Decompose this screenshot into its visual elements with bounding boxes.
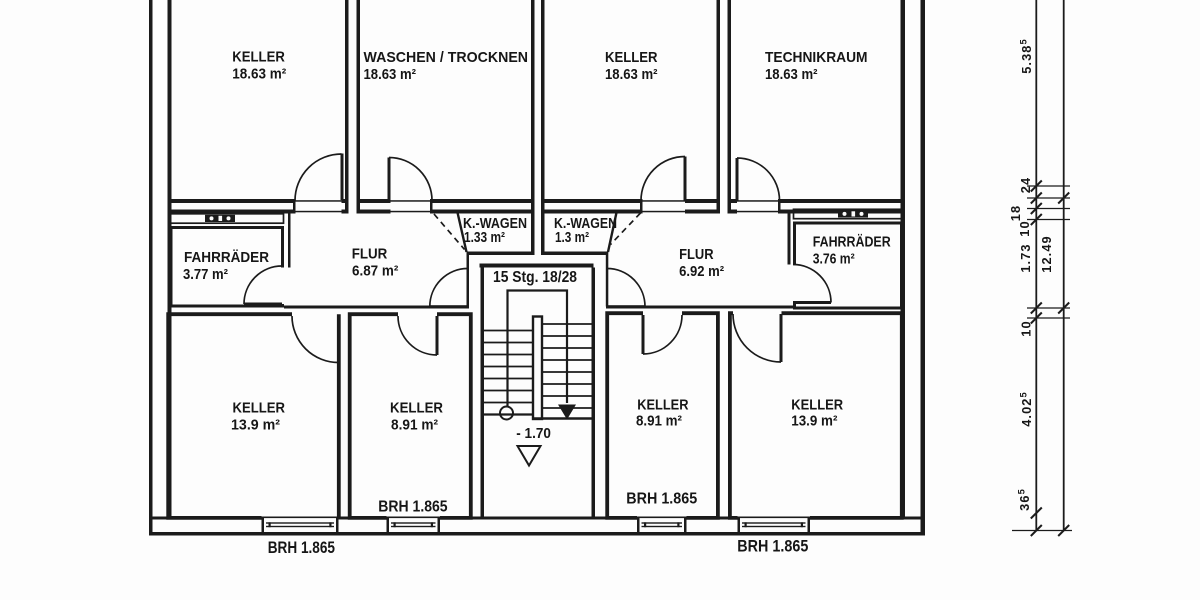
svg-text:KELLER: KELLER <box>637 397 689 413</box>
svg-text:15 Stg. 18/28: 15 Stg. 18/28 <box>493 269 577 286</box>
svg-text:BRH 1.865: BRH 1.865 <box>268 539 335 557</box>
svg-text:KELLER: KELLER <box>233 401 286 417</box>
svg-text:13.9 m²: 13.9 m² <box>791 414 837 430</box>
svg-text:1.73: 1.73 <box>1018 243 1033 272</box>
svg-text:18.63 m²: 18.63 m² <box>765 67 818 83</box>
svg-text:BRH 1.865: BRH 1.865 <box>378 499 447 516</box>
svg-text:KELLER: KELLER <box>791 397 843 413</box>
svg-text:BRH 1.865: BRH 1.865 <box>626 491 697 508</box>
svg-text:TECHNIKRAUM: TECHNIKRAUM <box>765 50 868 66</box>
svg-text:10: 10 <box>1019 320 1034 336</box>
svg-text:KELLER: KELLER <box>390 401 443 417</box>
svg-text:24: 24 <box>1018 177 1033 193</box>
svg-text:18.63 m²: 18.63 m² <box>232 67 286 83</box>
svg-text:1.33 m²: 1.33 m² <box>464 230 505 246</box>
svg-text:WASCHEN / TROCKNEN: WASCHEN / TROCKNEN <box>364 50 529 66</box>
svg-text:6.92 m²: 6.92 m² <box>679 264 724 280</box>
svg-text:13.9 m²: 13.9 m² <box>231 418 280 434</box>
svg-text:3.76 m²: 3.76 m² <box>813 252 855 268</box>
svg-text:6.87 m²: 6.87 m² <box>352 263 398 279</box>
svg-text:KELLER: KELLER <box>232 50 285 66</box>
svg-text:18.63 m²: 18.63 m² <box>605 67 658 83</box>
svg-text:- 1.70: - 1.70 <box>516 426 551 442</box>
svg-text:1.3 m²: 1.3 m² <box>555 230 589 246</box>
svg-text:12.49: 12.49 <box>1039 235 1054 273</box>
svg-text:FAHRRÄDER: FAHRRÄDER <box>813 234 891 251</box>
svg-text:18.63 m²: 18.63 m² <box>364 67 417 83</box>
svg-text:FLUR: FLUR <box>679 247 714 263</box>
svg-text:BRH 1.865: BRH 1.865 <box>737 538 808 556</box>
svg-text:FAHRRÄDER: FAHRRÄDER <box>184 249 269 266</box>
svg-text:8.91 m²: 8.91 m² <box>636 414 682 430</box>
svg-text:KELLER: KELLER <box>605 50 658 66</box>
svg-text:FLUR: FLUR <box>352 246 388 262</box>
svg-text:3.77 m²: 3.77 m² <box>183 267 228 283</box>
svg-text:10: 10 <box>1017 220 1032 236</box>
svg-text:8.91 m²: 8.91 m² <box>391 418 438 434</box>
svg-text:18: 18 <box>1008 205 1023 221</box>
